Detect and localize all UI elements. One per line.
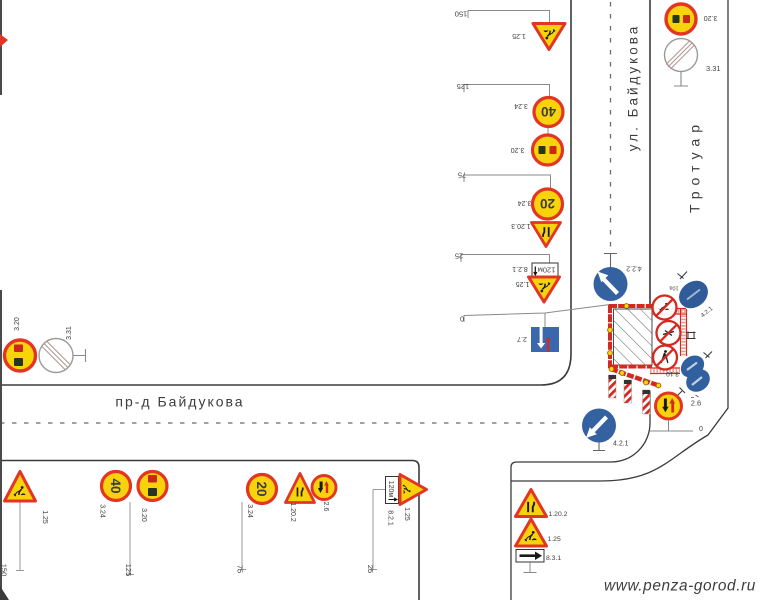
svg-text:2.7: 2.7 <box>517 335 527 342</box>
svg-text:1.25: 1.25 <box>403 507 410 521</box>
svg-text:пр-д Байдукова: пр-д Байдукова <box>115 394 244 410</box>
svg-text:3.24: 3.24 <box>99 504 106 518</box>
svg-text:40: 40 <box>108 478 123 493</box>
svg-text:1.25: 1.25 <box>548 536 561 543</box>
svg-text:3.20: 3.20 <box>704 14 718 21</box>
svg-text:8.2.1: 8.2.1 <box>512 265 528 272</box>
svg-text:1.20.2: 1.20.2 <box>549 511 568 518</box>
svg-text:Тротуар: Тротуар <box>687 119 703 213</box>
svg-text:25: 25 <box>455 252 463 261</box>
svg-text:3.31: 3.31 <box>66 326 73 340</box>
svg-text:1.25: 1.25 <box>41 510 48 524</box>
svg-text:1.20.2: 1.20.2 <box>289 502 296 522</box>
svg-text:1.25: 1.25 <box>512 32 526 39</box>
svg-text:125: 125 <box>124 564 133 577</box>
svg-text:120м: 120м <box>387 481 394 498</box>
svg-text:8.3.1: 8.3.1 <box>546 555 561 562</box>
svg-text:0: 0 <box>460 315 464 324</box>
svg-text:20: 20 <box>540 196 555 211</box>
svg-text:3.20: 3.20 <box>511 146 525 153</box>
svg-text:3.20: 3.20 <box>140 508 147 522</box>
svg-text:2.6: 2.6 <box>691 399 701 408</box>
svg-text:ул. Байдукова: ул. Байдукова <box>626 24 641 151</box>
svg-text:3.20: 3.20 <box>14 317 21 331</box>
svg-text:3.24: 3.24 <box>246 504 253 518</box>
svg-text:125: 125 <box>457 82 470 91</box>
svg-text:4.2.2: 4.2.2 <box>626 265 642 272</box>
svg-text:3.10: 3.10 <box>666 370 679 377</box>
svg-text:20: 20 <box>254 481 269 496</box>
svg-text:3.24: 3.24 <box>514 102 528 109</box>
svg-text:150: 150 <box>455 10 468 19</box>
svg-text:40: 40 <box>541 104 556 119</box>
svg-text:1.25: 1.25 <box>516 280 530 287</box>
svg-text:1.20.3: 1.20.3 <box>511 222 531 229</box>
svg-text:75: 75 <box>236 565 245 573</box>
svg-text:3.31: 3.31 <box>706 64 721 73</box>
svg-text:0: 0 <box>699 426 703 433</box>
svg-text:2.6: 2.6 <box>322 502 329 512</box>
svg-text:3.24: 3.24 <box>518 199 532 206</box>
svg-text:8.2.1: 8.2.1 <box>387 510 394 526</box>
svg-text:120м: 120м <box>538 266 556 275</box>
svg-text:25: 25 <box>366 565 375 573</box>
svg-text:4.2.1: 4.2.1 <box>613 441 629 448</box>
svg-text:10а: 10а <box>668 285 678 291</box>
svg-text:75: 75 <box>458 171 466 180</box>
svg-text:www.penza-gorod.ru: www.penza-gorod.ru <box>604 578 756 595</box>
